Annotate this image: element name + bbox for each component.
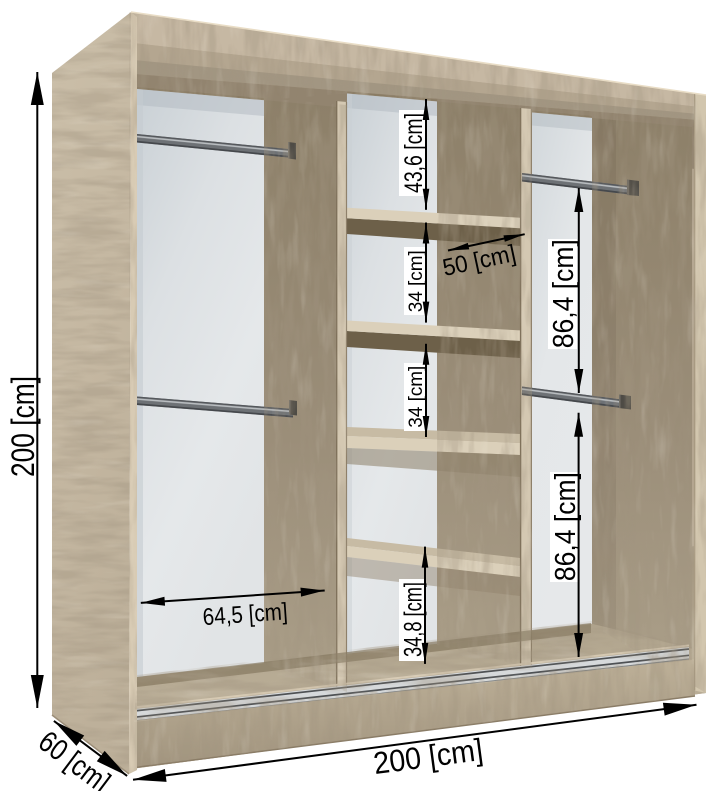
svg-text:200 [cm]: 200 [cm] [5, 376, 41, 477]
svg-text:34 [cm]: 34 [cm] [405, 366, 427, 428]
svg-text:86,4 [cm]: 86,4 [cm] [548, 239, 580, 348]
svg-text:34,8 [cm]: 34,8 [cm] [400, 582, 428, 657]
svg-text:43,6 [cm]: 43,6 [cm] [400, 113, 428, 193]
svg-text:34 [cm]: 34 [cm] [405, 250, 427, 312]
svg-text:64,5 [cm]: 64,5 [cm] [202, 598, 289, 631]
svg-text:86,4 [cm]: 86,4 [cm] [550, 472, 582, 581]
